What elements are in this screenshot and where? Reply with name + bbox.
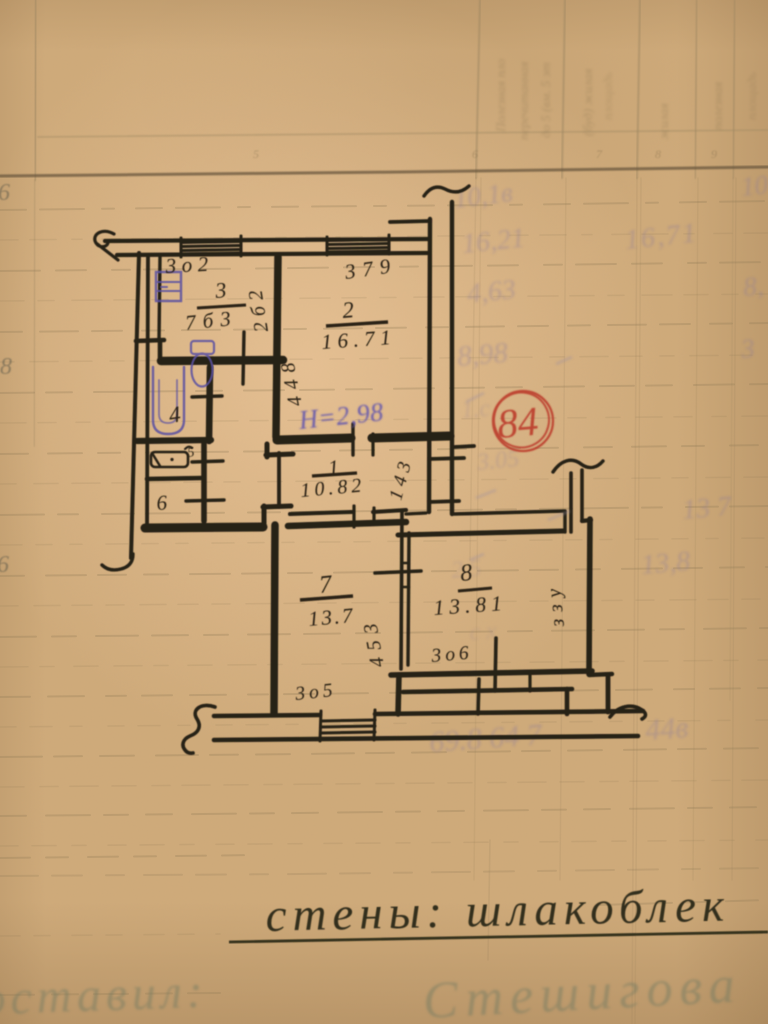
- svg-text:8,98: 8,98: [456, 337, 510, 373]
- svg-text:13,8: 13,8: [640, 546, 692, 581]
- svg-text:8,: 8,: [742, 270, 765, 302]
- svg-text:3: 3: [213, 277, 227, 303]
- svg-text:13.81: 13.81: [433, 591, 508, 620]
- svg-text:44в: 44в: [644, 711, 689, 747]
- svg-text:полезная: полезная: [710, 82, 725, 130]
- svg-text:8: 8: [655, 147, 661, 161]
- svg-text:13 7: 13 7: [681, 491, 734, 526]
- svg-text:перечитанная: перечитанная: [516, 61, 531, 140]
- svg-text:(буд) жилая: (буд) жилая: [580, 68, 595, 136]
- svg-text:84: 84: [495, 398, 540, 447]
- svg-text:36: 36: [0, 552, 9, 578]
- svg-text:16: 16: [0, 180, 10, 206]
- svg-text:1.с: 1.с: [460, 396, 491, 424]
- svg-text:3о2: 3о2: [164, 252, 214, 279]
- svg-text:4,63: 4,63: [465, 274, 517, 310]
- svg-text:Полезная пло: Полезная пло: [493, 58, 508, 133]
- svg-text:7: 7: [596, 147, 603, 161]
- svg-text:с х: с х: [469, 618, 498, 646]
- svg-text:3: 3: [739, 333, 756, 364]
- svg-text:3о6: 3о6: [430, 642, 474, 667]
- svg-text:10: 10: [739, 169, 768, 202]
- svg-text:6: 6: [472, 147, 478, 161]
- svg-text:оставил:: оставил:: [0, 965, 209, 1024]
- svg-text:13.7: 13.7: [307, 603, 356, 631]
- svg-text:18: 18: [0, 354, 12, 380]
- svg-text:5: 5: [253, 147, 259, 161]
- svg-text:жилая: жилая: [656, 103, 671, 140]
- svg-text:3о5: 3о5: [293, 680, 337, 705]
- svg-text:2: 2: [341, 297, 355, 323]
- svg-text:до 5 (вм. 5 эт: до 5 (вм. 5 эт: [538, 62, 553, 138]
- svg-text:16,21: 16,21: [460, 223, 526, 260]
- svg-text:площадь: площадь: [600, 72, 615, 120]
- svg-text:площадь: площадь: [744, 72, 759, 120]
- svg-text:9: 9: [711, 147, 717, 161]
